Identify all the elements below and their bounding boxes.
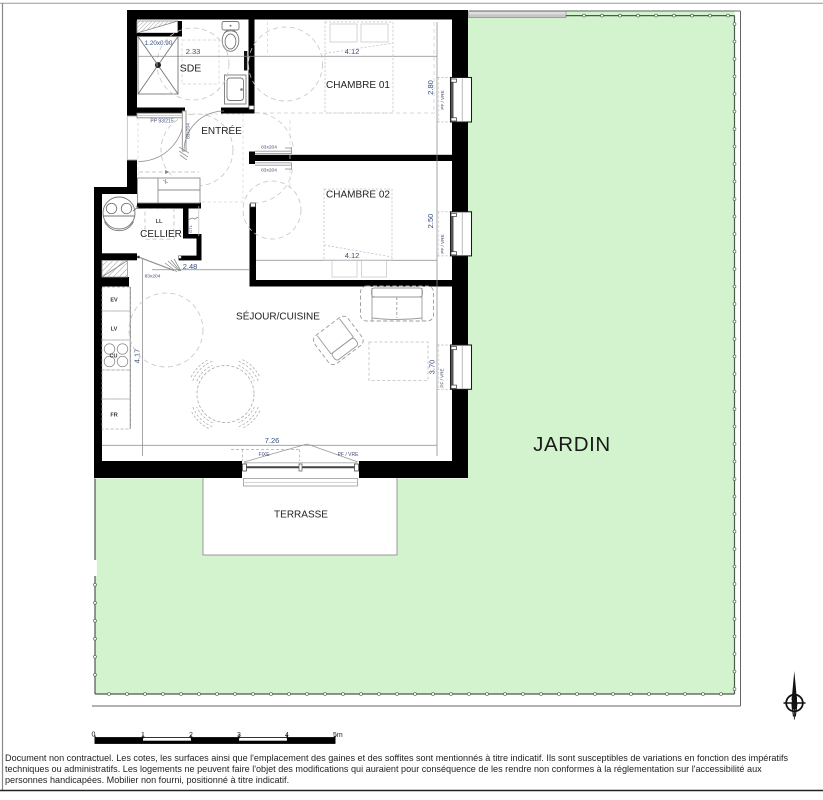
svg-text:FR: FR — [110, 413, 117, 419]
svg-text:PF / VRE: PF / VRE — [440, 368, 445, 387]
svg-text:FIXE: FIXE — [258, 452, 270, 458]
svg-text:CU: CU — [110, 354, 118, 360]
svg-text:LV: LV — [111, 327, 118, 333]
svg-text:83x204: 83x204 — [261, 145, 277, 151]
svg-text:PF / VRE: PF / VRE — [440, 234, 445, 253]
svg-text:JARDIN: JARDIN — [533, 433, 611, 456]
svg-text:3.70: 3.70 — [428, 360, 437, 375]
svg-text:techniques ou administratifs.: techniques ou administratifs. Les logeme… — [5, 764, 762, 774]
svg-text:2.50: 2.50 — [426, 214, 435, 229]
svg-text:CHAMBRE 01: CHAMBRE 01 — [326, 80, 390, 91]
svg-text:PF / VRE: PF / VRE — [338, 452, 360, 458]
svg-text:ENTRÉE: ENTRÉE — [201, 124, 242, 137]
svg-text:SÉJOUR/CUISINE: SÉJOUR/CUISINE — [236, 310, 320, 323]
svg-text:SDE: SDE — [180, 63, 202, 75]
svg-text:7.26: 7.26 — [265, 436, 280, 445]
svg-text:PP 93/215: PP 93/215 — [150, 119, 173, 125]
svg-text:83x204: 83x204 — [145, 274, 161, 280]
svg-text:GTL: GTL — [188, 224, 193, 233]
svg-text:PF / VRE: PF / VRE — [440, 90, 445, 109]
svg-text:Document non contractuel. Les: Document non contractuel. Les cotes, les… — [5, 753, 788, 763]
svg-text:CHAMBRE 02: CHAMBRE 02 — [326, 190, 390, 201]
svg-text:4.12: 4.12 — [345, 251, 360, 260]
svg-text:personnes handicapées. Mobilie: personnes handicapées. Mobilier non four… — [5, 775, 289, 785]
svg-text:EV: EV — [110, 298, 118, 304]
svg-text:83x204: 83x204 — [261, 167, 277, 173]
svg-text:2.48: 2.48 — [183, 262, 198, 271]
svg-text:CELLIER: CELLIER — [140, 229, 182, 240]
svg-text:TERRASSE: TERRASSE — [274, 510, 328, 521]
svg-text:1.20x0.90: 1.20x0.90 — [145, 40, 173, 47]
svg-text:2.33: 2.33 — [186, 47, 201, 56]
svg-text:83x204: 83x204 — [186, 123, 192, 139]
svg-text:LL: LL — [156, 219, 163, 225]
